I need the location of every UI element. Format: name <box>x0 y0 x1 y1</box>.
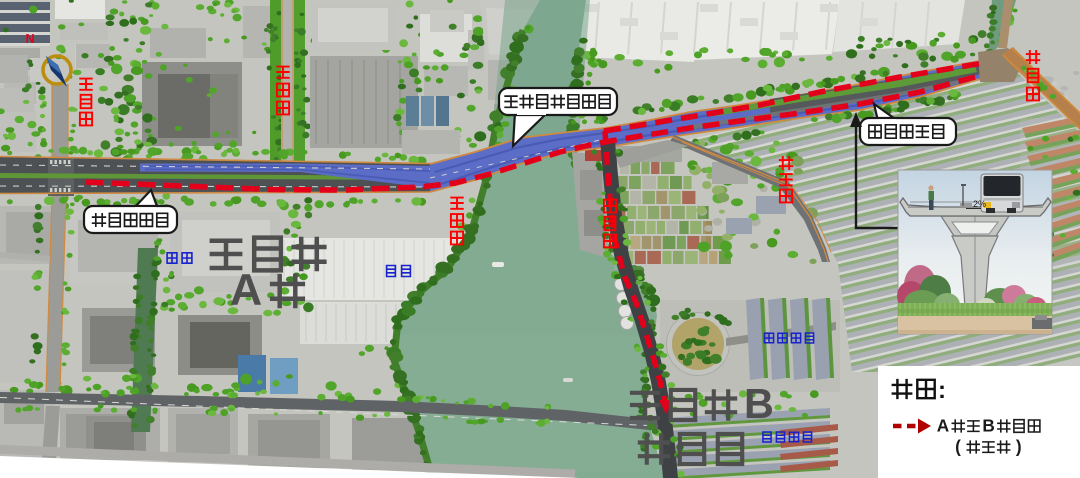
svg-text:B: B <box>744 381 774 427</box>
svg-text:A: A <box>937 415 949 435</box>
svg-text:2%: 2% <box>973 199 986 209</box>
svg-text:A: A <box>230 265 262 315</box>
svg-text:N: N <box>25 32 34 46</box>
svg-text:B: B <box>982 415 994 435</box>
svg-text:(: ( <box>955 436 961 456</box>
svg-text::: : <box>938 377 946 404</box>
svg-text:): ) <box>1016 436 1022 456</box>
